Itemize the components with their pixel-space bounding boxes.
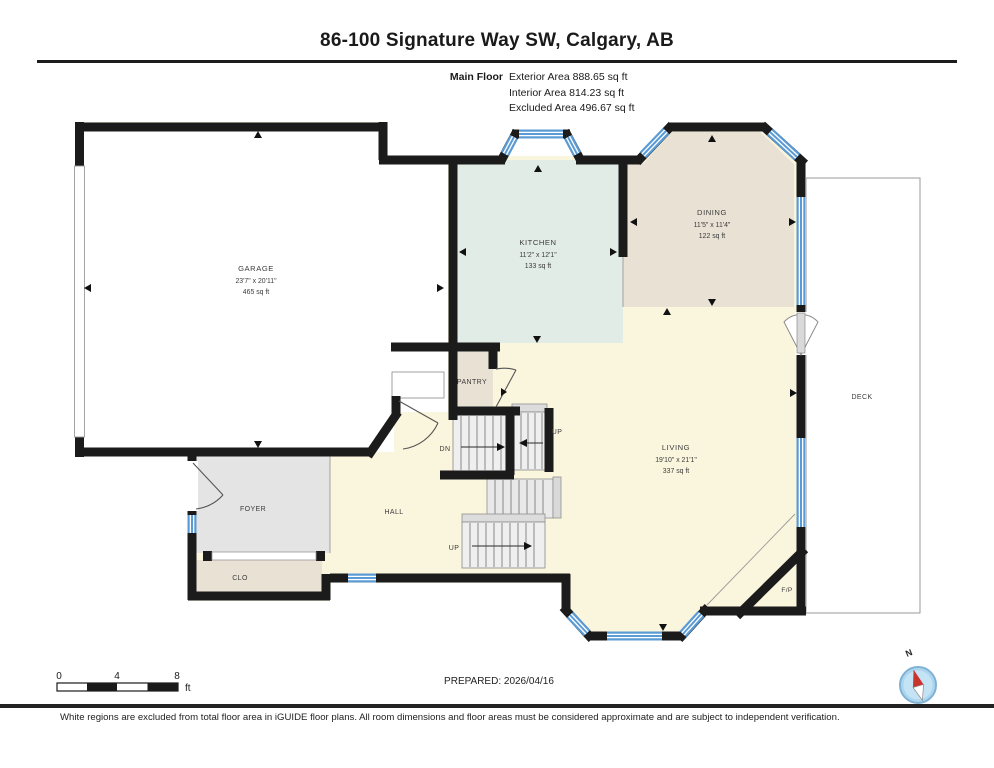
svg-text:KITCHEN: KITCHEN [519, 238, 556, 247]
svg-text:11'5" x 11'4": 11'5" x 11'4" [694, 222, 731, 229]
stair-label-dn: DN [440, 446, 451, 453]
footer-divider [0, 704, 994, 708]
scale-bar: 0 4 8 ft [56, 671, 191, 694]
room-label-fireplace: F/P [781, 587, 792, 594]
room-label-hall: HALL [384, 509, 403, 516]
room-label-deck: DECK [851, 394, 872, 401]
svg-text:DINING: DINING [697, 208, 727, 217]
room-closet-fill [196, 560, 322, 592]
room-label-pantry: PANTRY [457, 379, 487, 386]
svg-text:23'7" x 20'11": 23'7" x 20'11" [235, 278, 277, 285]
scale-tick-4: 4 [114, 671, 120, 682]
scale-tick-8: 8 [174, 671, 180, 682]
closet-sliding-door [203, 551, 325, 561]
floor-plan-page: 86-100 Signature Way SW, Calgary, AB Mai… [0, 0, 994, 768]
stair-label-up-2: UP [449, 545, 460, 552]
svg-text:19'10" x 21'1": 19'10" x 21'1" [655, 457, 697, 464]
svg-text:11'2" x 12'1": 11'2" x 12'1" [519, 252, 557, 259]
garage-door [75, 166, 85, 437]
scale-tick-0: 0 [56, 671, 62, 682]
room-label-closet: CLO [232, 575, 248, 582]
disclaimer-text: White regions are excluded from total fl… [60, 712, 994, 723]
stair-label-up-1: UP [552, 429, 563, 436]
svg-text:GARAGE: GARAGE [238, 264, 274, 273]
svg-text:LIVING: LIVING [662, 443, 690, 452]
scale-unit: ft [185, 683, 191, 694]
svg-text:133 sq ft: 133 sq ft [525, 263, 552, 270]
understair-closet [392, 372, 444, 398]
svg-text:465 sq ft: 465 sq ft [243, 289, 270, 296]
svg-text:337 sq ft: 337 sq ft [663, 468, 690, 475]
room-foyer-fill [196, 452, 330, 553]
floor-plan-drawing: GARAGE 23'7" x 20'11" 465 sq ft KITCHEN … [0, 0, 994, 768]
room-label-foyer: FOYER [240, 506, 266, 513]
compass: N [900, 647, 936, 703]
compass-north-label: N [904, 647, 914, 659]
prepared-date: PREPARED: 2026/04/16 [399, 676, 599, 687]
room-dining-fill [623, 132, 794, 307]
svg-text:122 sq ft: 122 sq ft [699, 233, 726, 240]
